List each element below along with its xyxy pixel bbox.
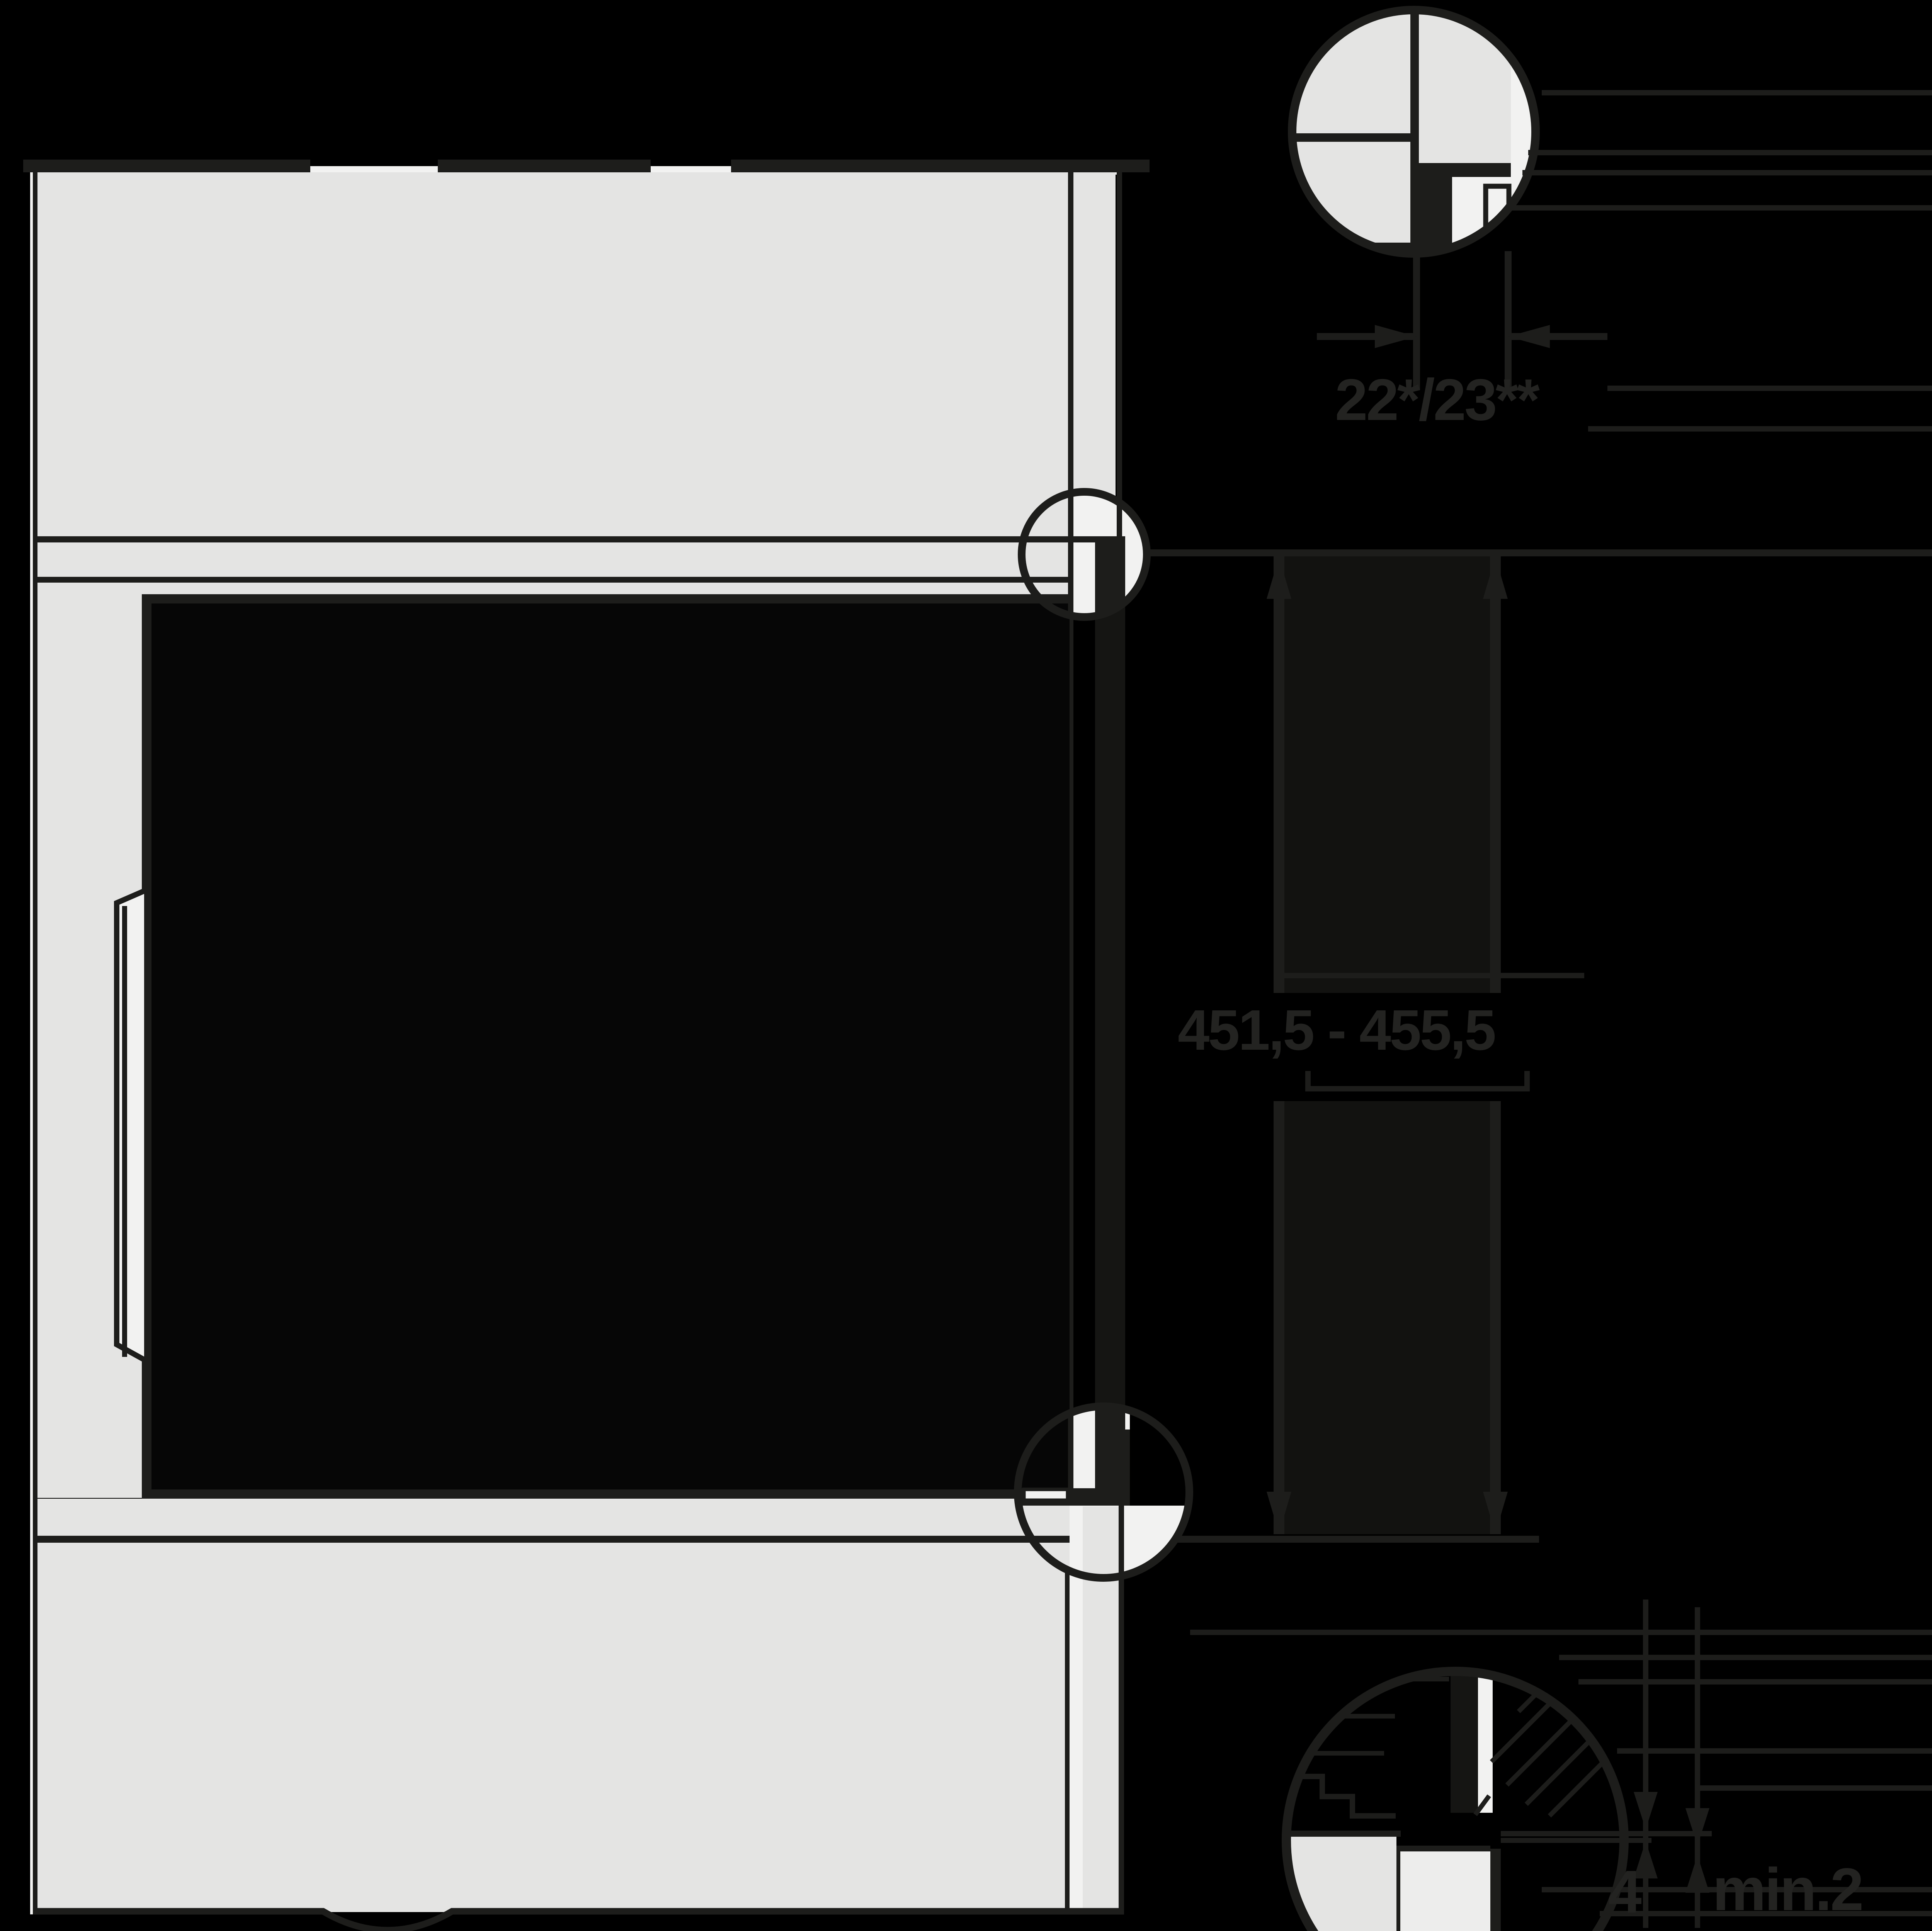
top-border-segment-2 bbox=[438, 160, 651, 172]
top-border-segment-3 bbox=[731, 160, 1150, 172]
height-bar-left-lower bbox=[1274, 1101, 1284, 1534]
door-panel bbox=[1095, 543, 1125, 1489]
diagram-canvas bbox=[0, 0, 1932, 1931]
bottom-cabinet bbox=[34, 1499, 1124, 1930]
appliance-rear-bump-inner-line bbox=[122, 906, 127, 1357]
appliance-fill bbox=[142, 597, 1070, 1498]
magnified-door-gap-strip bbox=[1478, 1669, 1493, 1813]
appliance-body bbox=[117, 594, 1070, 1510]
height-bar-right-upper bbox=[1490, 556, 1501, 993]
top-cabinet-panel bbox=[37, 172, 1116, 594]
cabinet-left-border bbox=[33, 160, 37, 1914]
height-bar-right-lower bbox=[1490, 1101, 1501, 1534]
niche-bottom-projection-line bbox=[1190, 1630, 1932, 1635]
overlay-thickness-label: 22*/23** bbox=[1335, 366, 1538, 434]
shelf-line-lower bbox=[37, 577, 1073, 583]
niche-floor-line-left bbox=[37, 1536, 1070, 1543]
gap4-dimension-line bbox=[1643, 1600, 1648, 1928]
shelf-line-upper bbox=[37, 536, 1125, 542]
min-clearance-label: min.2 bbox=[1713, 1855, 1862, 1924]
bottom-cabinet-panel bbox=[37, 1499, 1119, 1912]
height-bar-left-upper bbox=[1274, 556, 1284, 993]
top-border-segment-1 bbox=[23, 160, 310, 172]
appliance-rear-bump bbox=[117, 890, 147, 1361]
niche-height-label: 451,5 - 455,5 bbox=[1178, 998, 1495, 1063]
niche-top-reference-line bbox=[1144, 549, 1932, 556]
niche-floor-line-right bbox=[1124, 1536, 1539, 1543]
installation-diagram: 22*/23** 451,5 - 455,5 4 min.2 bbox=[0, 0, 1932, 1931]
appliance-top-border bbox=[142, 594, 1070, 603]
bottom-gap-label: 4 bbox=[1608, 1858, 1640, 1927]
